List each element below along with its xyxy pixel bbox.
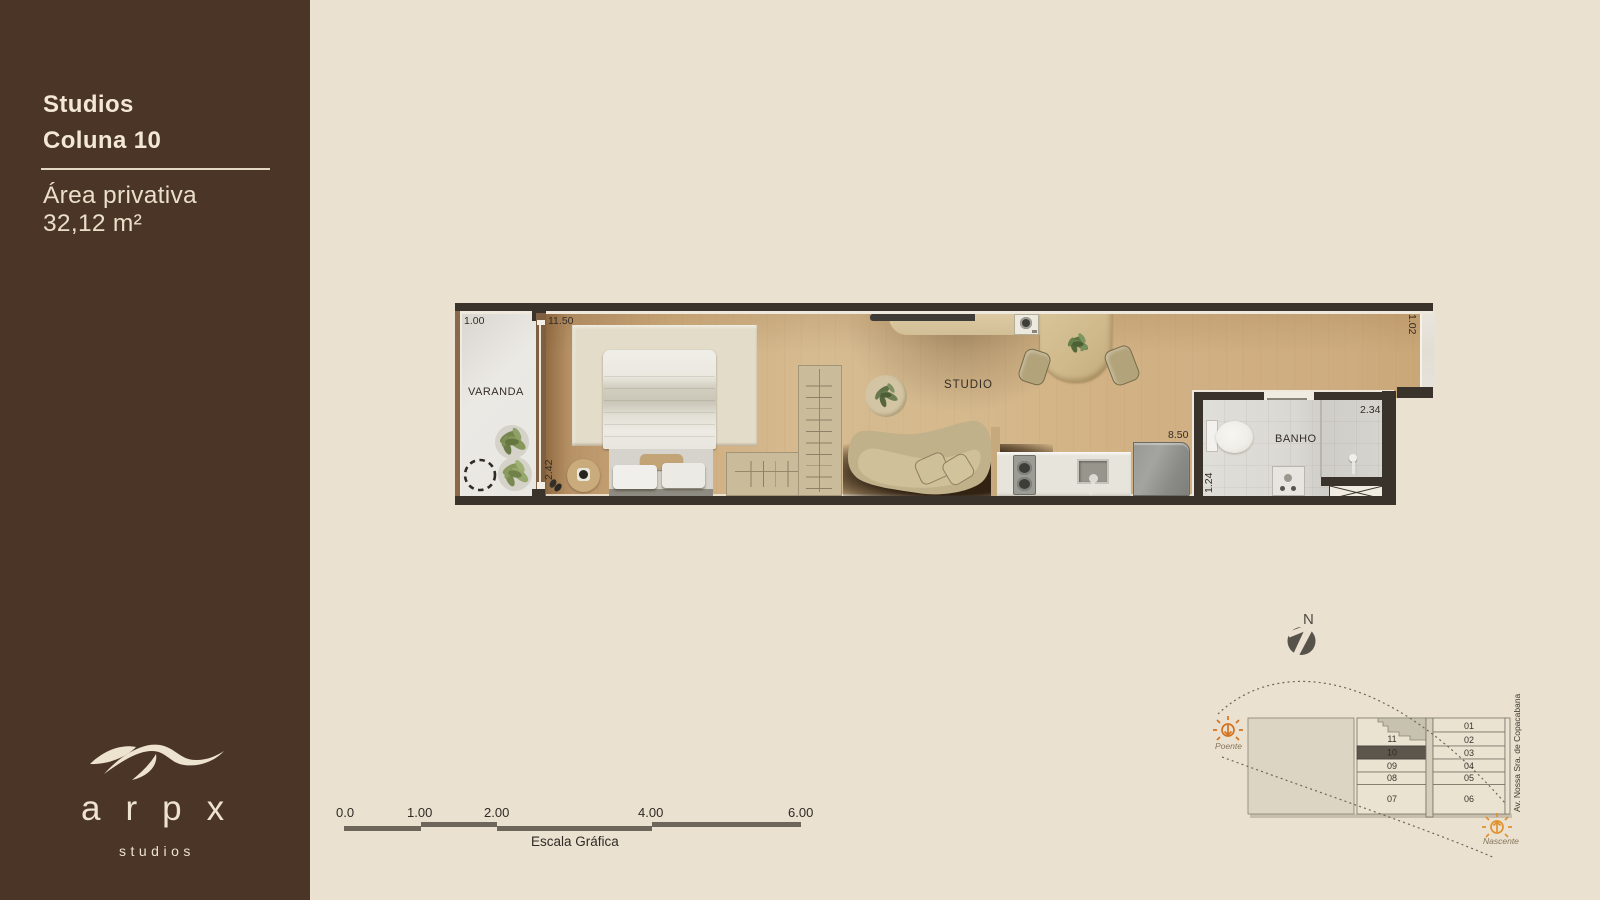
- svg-text:03: 03: [1464, 748, 1474, 758]
- svg-text:Nascente: Nascente: [1483, 836, 1519, 846]
- svg-text:06: 06: [1464, 794, 1474, 804]
- svg-text:08: 08: [1387, 773, 1397, 783]
- svg-text:10: 10: [1387, 748, 1397, 758]
- svg-text:02: 02: [1464, 735, 1474, 745]
- svg-text:09: 09: [1387, 761, 1397, 771]
- svg-text:01: 01: [1464, 721, 1474, 731]
- svg-text:11: 11: [1387, 734, 1396, 744]
- svg-text:05: 05: [1464, 773, 1474, 783]
- svg-text:07: 07: [1387, 794, 1397, 804]
- svg-text:Av. Nossa Sra. de Copacabana: Av. Nossa Sra. de Copacabana: [1512, 693, 1522, 812]
- svg-text:Poente: Poente: [1215, 741, 1242, 751]
- svg-text:04: 04: [1464, 761, 1474, 771]
